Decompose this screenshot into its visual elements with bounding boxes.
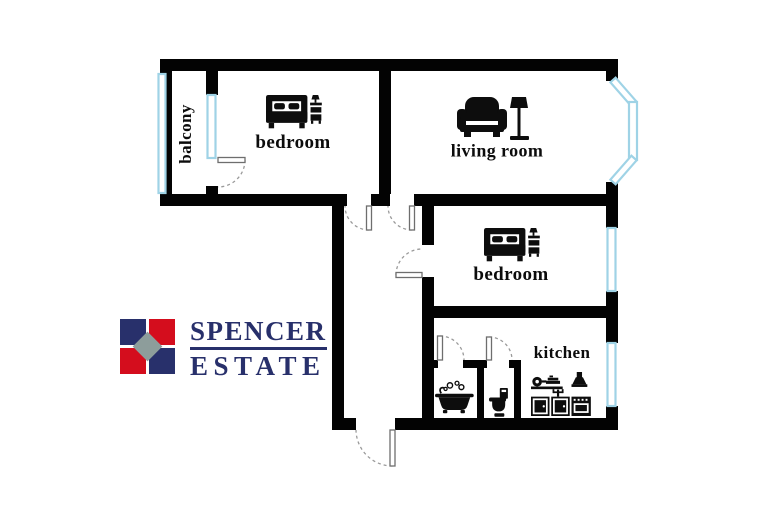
door-leaf [218, 158, 245, 163]
room-label-living-room: living room [451, 141, 544, 162]
room-label-bedroom-top: bedroom [255, 132, 330, 154]
door-swing-arc [489, 337, 512, 360]
wall-segment [606, 291, 618, 343]
wall-segment [477, 360, 484, 418]
wall-segment [332, 194, 344, 430]
floor-plan-drawing [0, 0, 770, 510]
door-swing-arc [356, 430, 393, 466]
wall-segment [422, 306, 612, 318]
bay-window-middle [629, 102, 637, 160]
logo-squares-mark [120, 318, 176, 375]
logo-line2: ESTATE [190, 353, 327, 380]
wall-segment [414, 194, 618, 206]
door-toilet [487, 337, 513, 360]
bay-window-bottom [610, 156, 636, 185]
door-swing-arc [388, 206, 412, 230]
door-swing-arc [345, 206, 369, 230]
door-swing-arc [396, 249, 422, 275]
door-bedroom-top [345, 206, 372, 230]
window-balcony-divider [208, 95, 216, 158]
wall-segment [371, 194, 390, 206]
door-swing-arc [218, 160, 245, 187]
wall-segment [206, 71, 218, 95]
wall-segment [606, 406, 618, 430]
door-swing-arc [440, 336, 464, 360]
toilet-icon [489, 388, 508, 417]
window-bedroom-right [608, 228, 616, 291]
door-leaf [396, 273, 422, 278]
wall-segment [422, 194, 434, 245]
door-bedroom-right [396, 249, 422, 278]
wall-segment [430, 360, 438, 368]
double-bed-with-nightstand-icon [266, 95, 322, 128]
wall-segment [206, 186, 218, 206]
door-leaf [410, 206, 415, 230]
double-bed-with-nightstand-icon [484, 228, 540, 261]
spencer-estate-logo: SPENCER ESTATE [120, 318, 327, 380]
door-leaf [438, 336, 443, 360]
door-balcony [218, 158, 245, 188]
window-balcony-outer [159, 74, 166, 193]
kitchen-appliances-icon [531, 372, 591, 416]
window-kitchen [608, 343, 616, 406]
wall-segment [332, 418, 356, 430]
door-leaf [487, 337, 492, 360]
bathtub-icon [435, 381, 474, 413]
room-label-balcony: balcony [176, 104, 196, 163]
logo-line1: SPENCER [190, 318, 327, 350]
wall-segment [422, 277, 434, 430]
door-leaf [367, 206, 372, 230]
wall-segment [606, 182, 618, 228]
wall-segment [160, 59, 618, 71]
wall-segment [160, 194, 347, 206]
room-label-bedroom-right: bedroom [473, 264, 548, 286]
armchair-with-floor-lamp-icon [457, 97, 529, 140]
door-bathroom [438, 336, 465, 360]
door-living-room [388, 206, 415, 230]
door-leaf [390, 430, 395, 466]
wall-segment [514, 360, 521, 418]
logo-text: SPENCER ESTATE [190, 318, 327, 380]
room-label-kitchen: kitchen [534, 343, 591, 363]
door-entrance [356, 430, 395, 466]
wall-segment [379, 71, 391, 194]
floor-plan-page: balcony bedroom living room bedroom kitc… [0, 0, 770, 510]
